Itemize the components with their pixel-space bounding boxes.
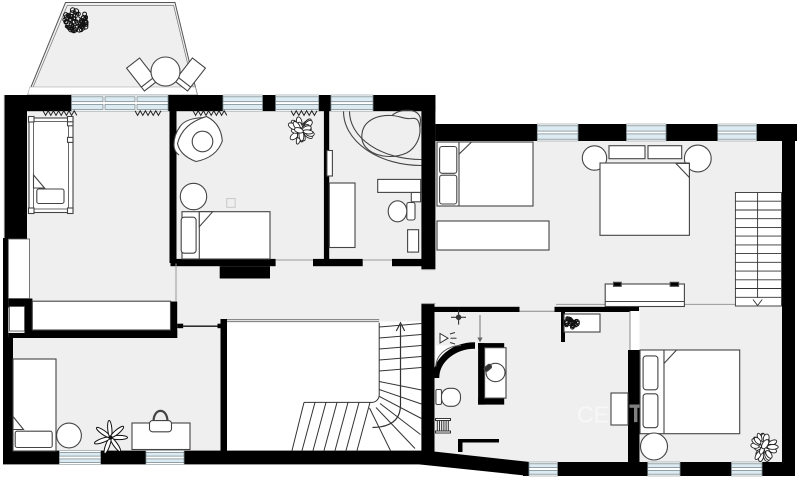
svg-text:СЕ: СЕ [577,402,609,428]
